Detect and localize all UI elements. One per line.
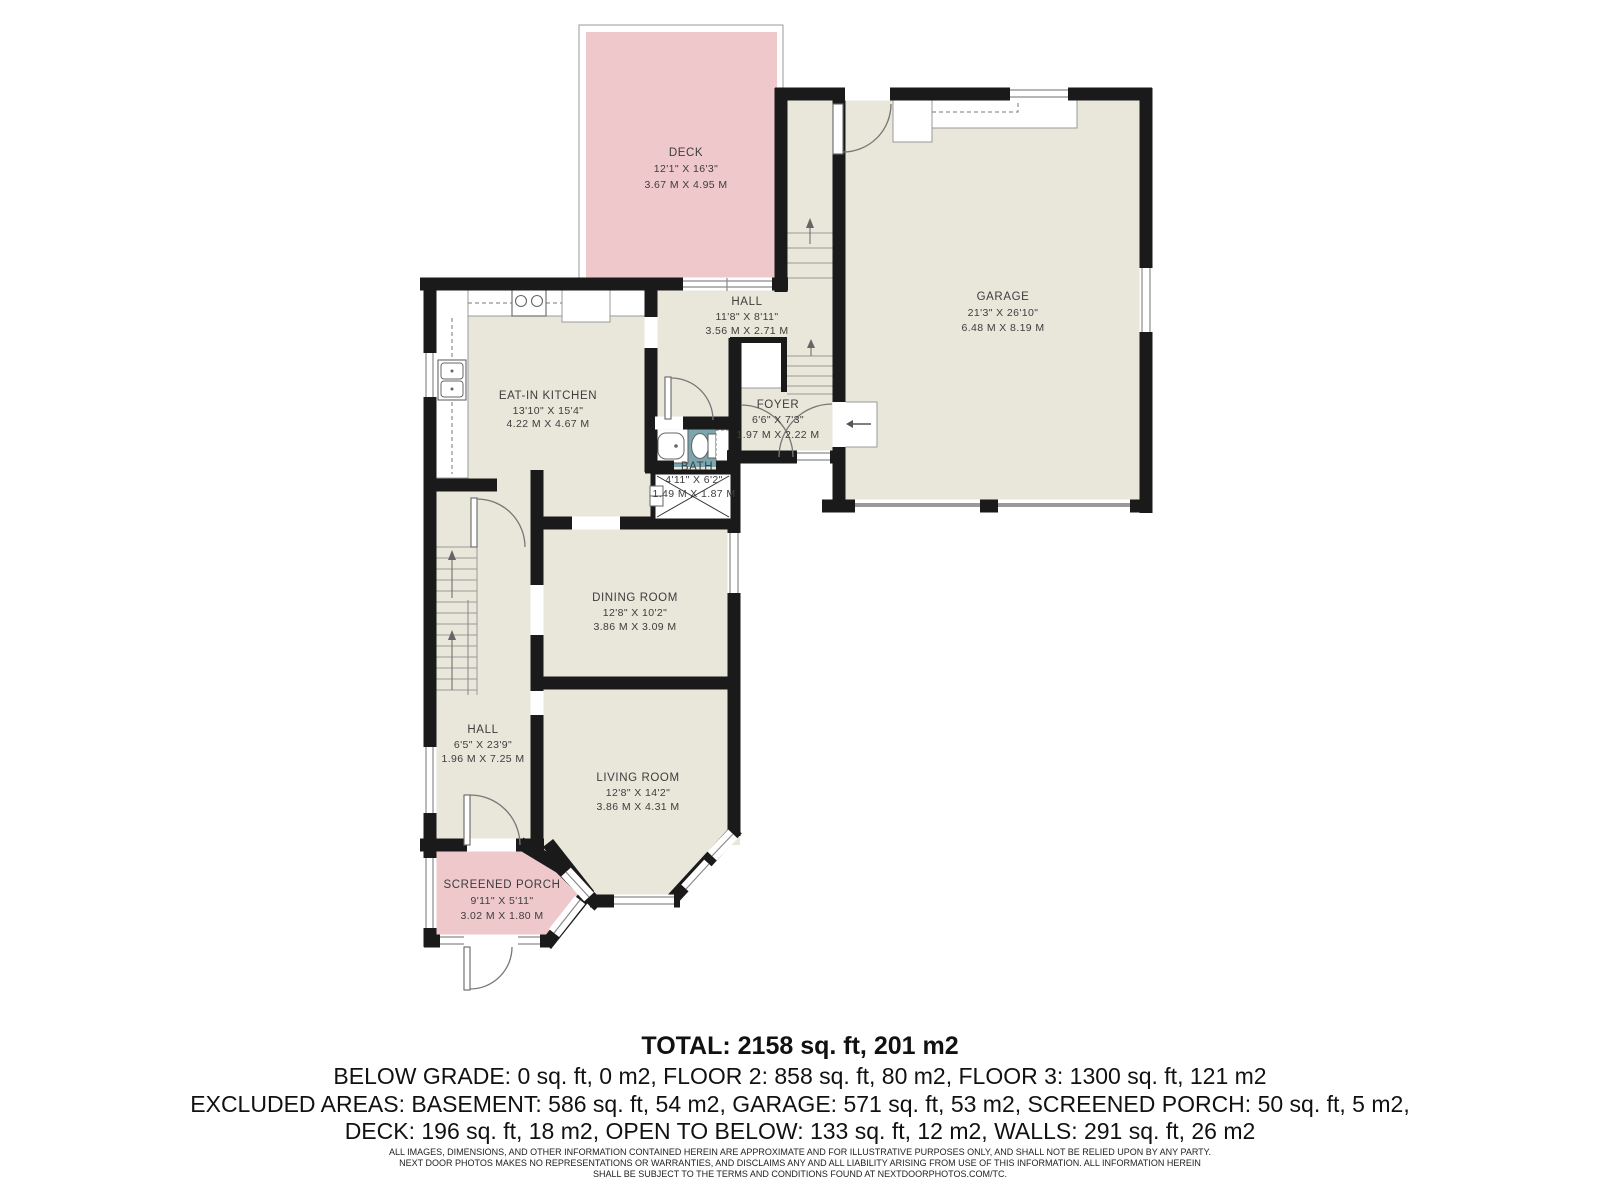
deck-dim-imperial: 12'1" X 16'3" xyxy=(654,163,719,175)
toilet-tank-icon xyxy=(708,434,716,458)
kitchen-dim-imperial: 13'10" X 15'4" xyxy=(513,405,584,417)
porch-label: SCREENED PORCH xyxy=(443,879,560,891)
shower-icon xyxy=(654,429,688,463)
sink-icon xyxy=(438,360,466,400)
dining-label: DINING ROOM xyxy=(592,592,678,604)
hall-lower-dim-imperial: 6'5" X 23'9" xyxy=(454,739,512,751)
window xyxy=(440,937,464,944)
hall-lower-dim-metric: 1.96 M X 7.25 M xyxy=(441,753,524,765)
foyer-dim-imperial: 6'6" X 7'3" xyxy=(752,414,804,426)
sliding-door xyxy=(683,278,772,291)
excluded-areas-line: EXCLUDED AREAS: BASEMENT: 586 sq. ft, 54… xyxy=(0,1091,1600,1118)
door-swing xyxy=(470,947,512,989)
bath-dim-metric: 1.49 M X 1.87 M xyxy=(652,488,735,500)
kitchen-dim-metric: 4.22 M X 4.67 M xyxy=(506,418,589,430)
garage-cabinet xyxy=(893,96,932,142)
disclaimer-line: NEXT DOOR PHOTOS MAKES NO REPRESENTATION… xyxy=(0,1158,1600,1169)
bath-dim-imperial: 4'11" X 6'2" xyxy=(665,474,723,486)
closet xyxy=(740,342,784,388)
foyer-dim-metric: 1.97 M X 2.22 M xyxy=(736,429,819,441)
window xyxy=(518,937,540,944)
dining-dim-imperial: 12'8" X 10'2" xyxy=(603,607,668,619)
garage-label: GARAGE xyxy=(977,291,1030,303)
floorplan-drawing: DECK 12'1" X 16'3" 3.67 M X 4.95 M GARAG… xyxy=(0,0,1600,1200)
window xyxy=(426,353,433,397)
door-leaf xyxy=(833,104,843,154)
living-dim-imperial: 12'8" X 14'2" xyxy=(606,787,671,799)
porch-dim-metric: 3.02 M X 1.80 M xyxy=(460,910,543,922)
deck-label: DECK xyxy=(669,147,703,159)
garage-dim-metric: 6.48 M X 8.19 M xyxy=(961,322,1044,334)
toilet-icon xyxy=(692,434,709,459)
window xyxy=(426,858,433,928)
hall-closet xyxy=(740,342,784,388)
door-leaf xyxy=(665,377,671,419)
door-leaf xyxy=(464,795,470,845)
living-label: LIVING ROOM xyxy=(596,772,679,784)
excluded-areas-line-2: DECK: 196 sq. ft, 18 m2, OPEN TO BELOW: … xyxy=(0,1118,1600,1145)
living-dim-metric: 3.86 M X 4.31 M xyxy=(596,801,679,813)
window xyxy=(1142,268,1150,332)
dining-dim-metric: 3.86 M X 3.09 M xyxy=(593,621,676,633)
kitchen-label: EAT-IN KITCHEN xyxy=(499,390,597,402)
disclaimer-line: SHALL BE SUBJECT TO THE TERMS AND CONDIT… xyxy=(0,1169,1600,1180)
bath-label: BATH xyxy=(681,461,713,473)
door-leaf xyxy=(464,947,470,990)
window xyxy=(1010,90,1068,97)
hall-lower-label: HALL xyxy=(467,724,498,736)
disclaimer-line: ALL IMAGES, DIMENSIONS, AND OTHER INFORM… xyxy=(0,1147,1600,1158)
hall-upper-dim-metric: 3.56 M X 2.71 M xyxy=(705,325,788,337)
deck-dim-metric: 3.67 M X 4.95 M xyxy=(644,179,727,191)
foyer-label: FOYER xyxy=(757,399,800,411)
porch-dim-imperial: 9'11" X 5'11" xyxy=(471,895,534,907)
floor-areas-line: BELOW GRADE: 0 sq. ft, 0 m2, FLOOR 2: 85… xyxy=(0,1063,1600,1090)
window xyxy=(730,533,738,593)
floorplan-page: DECK 12'1" X 16'3" 3.67 M X 4.95 M GARAG… xyxy=(0,0,1600,1200)
garage-dim-imperial: 21'3" X 26'10" xyxy=(968,307,1039,319)
disclaimer: ALL IMAGES, DIMENSIONS, AND OTHER INFORM… xyxy=(0,1147,1600,1180)
hall-upper-dim-imperial: 11'8" X 8'11" xyxy=(716,311,779,323)
window xyxy=(797,453,830,460)
window xyxy=(426,747,433,813)
total-area-line: TOTAL: 2158 sq. ft, 201 m2 xyxy=(0,1032,1600,1061)
door-leaf xyxy=(471,498,477,547)
hall-upper-label: HALL xyxy=(731,296,762,308)
